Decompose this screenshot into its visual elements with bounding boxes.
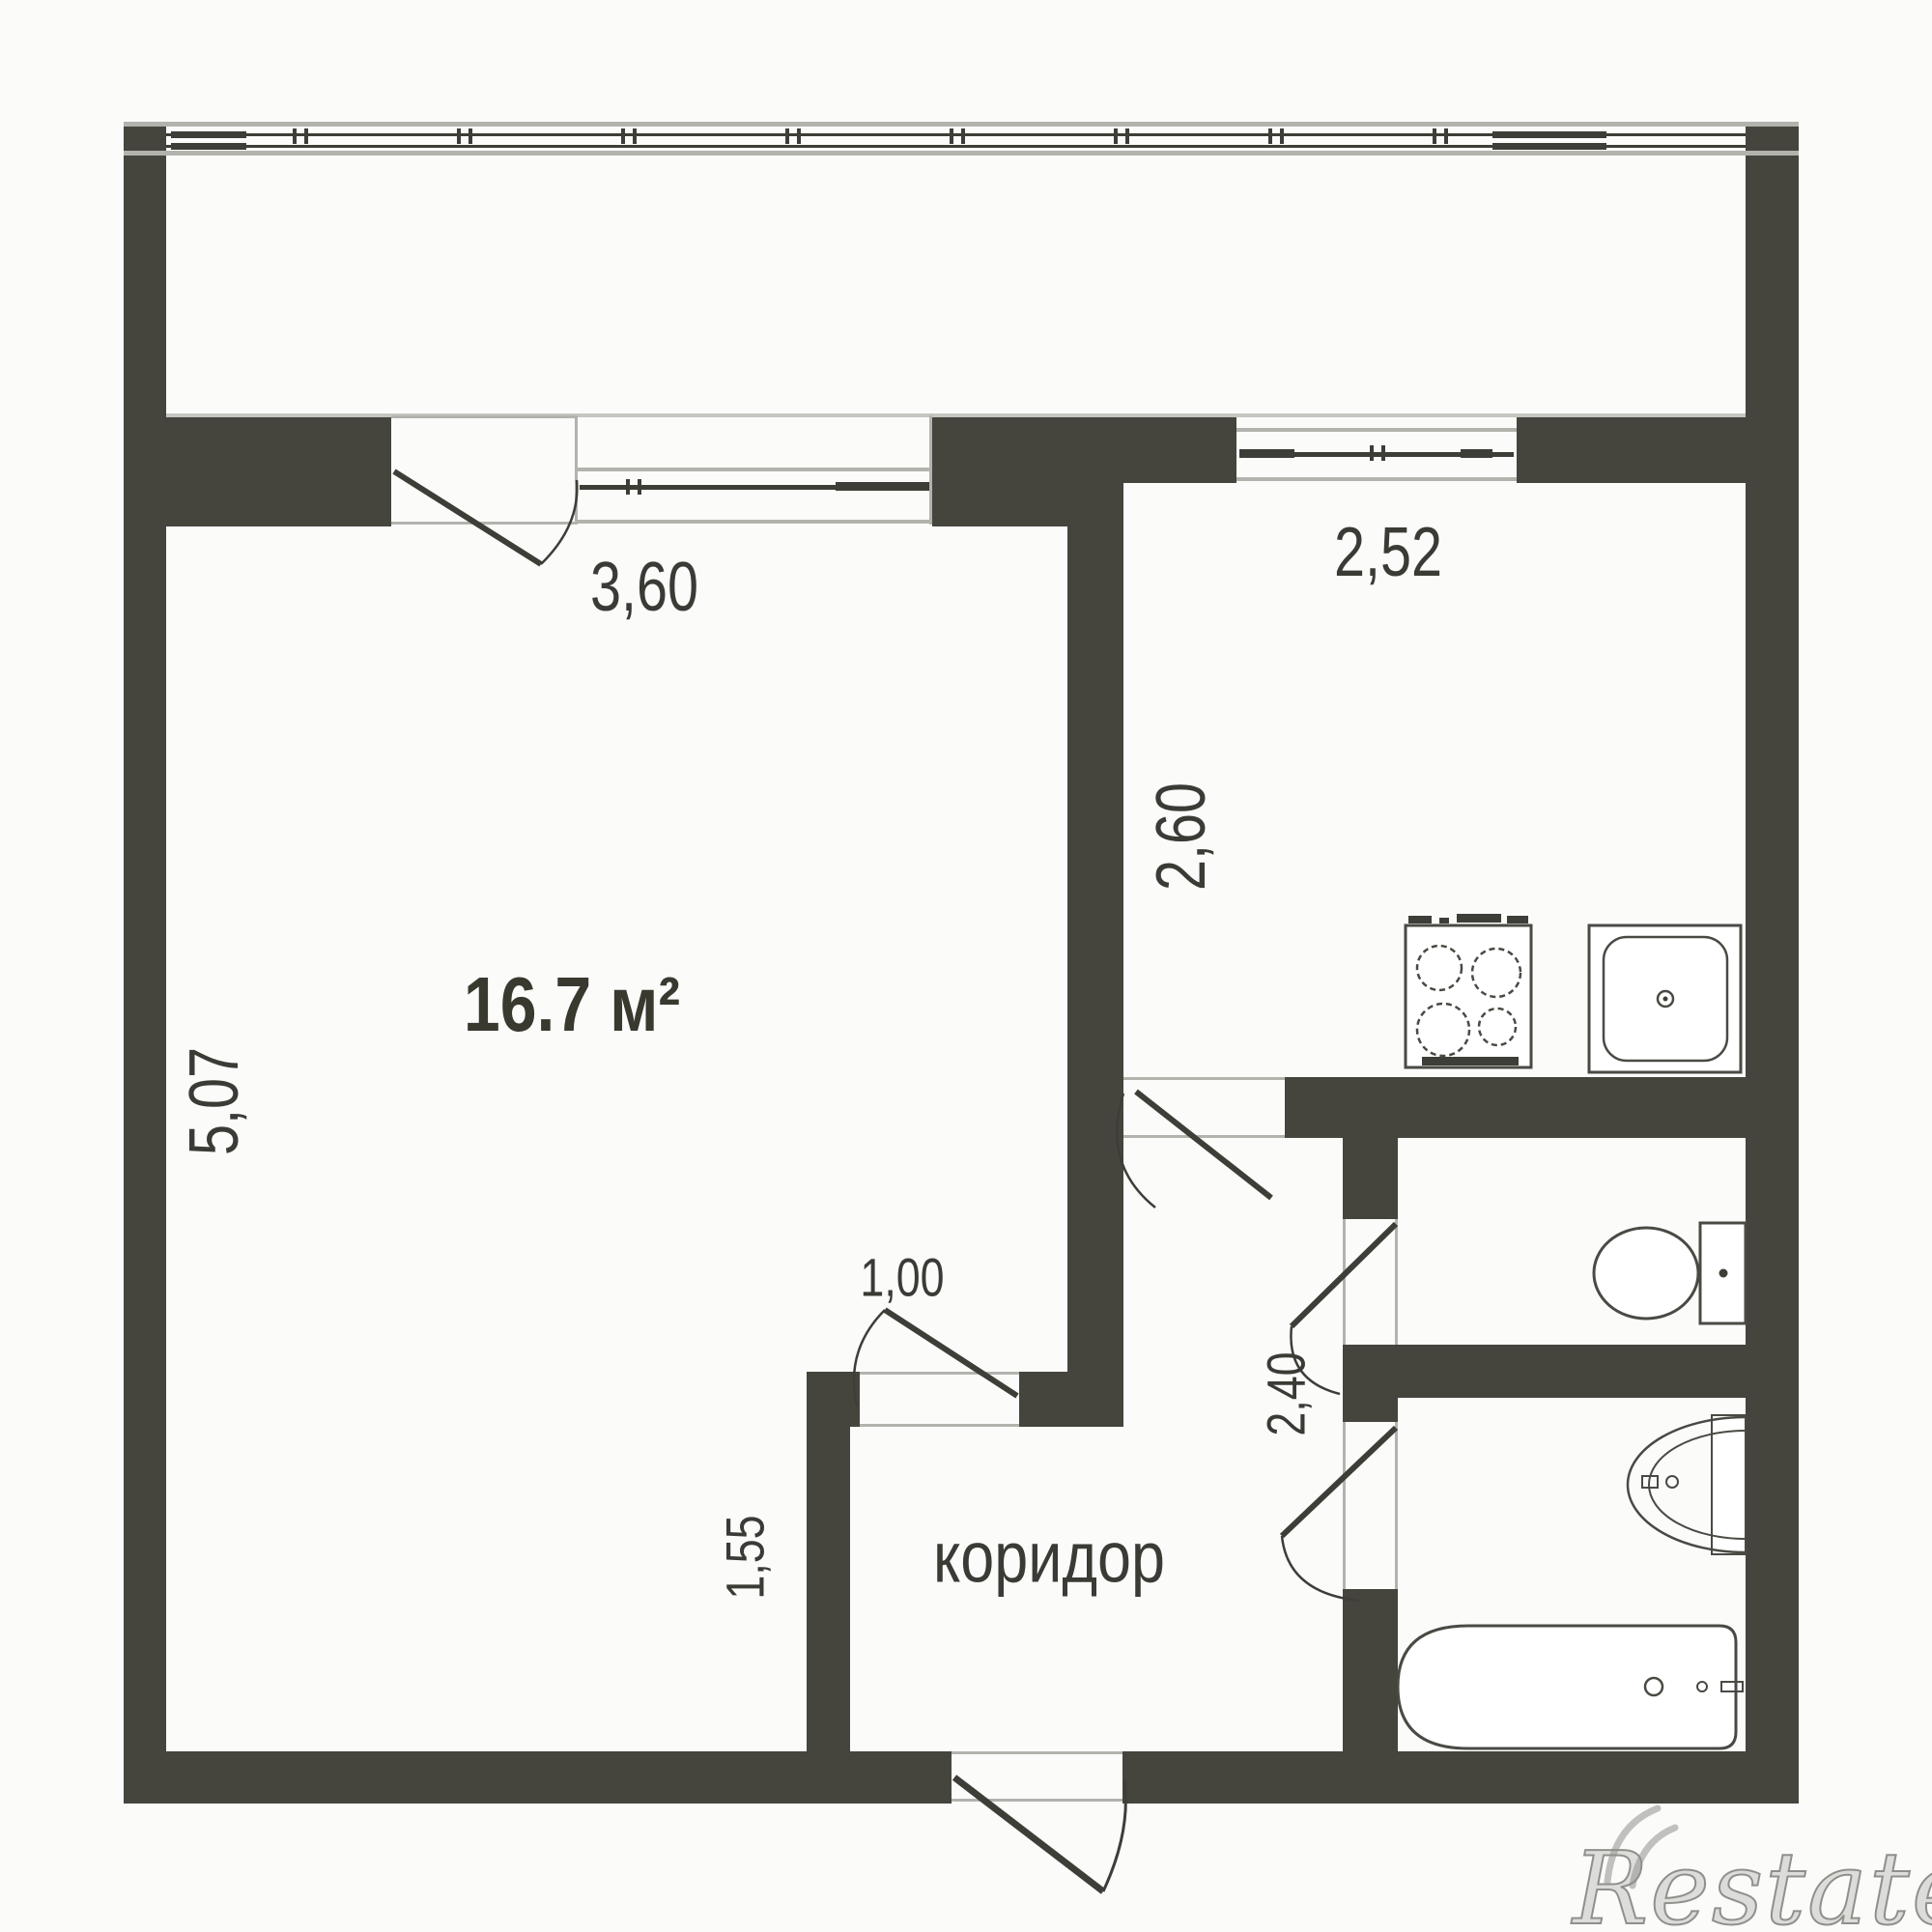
wall-outer-left — [124, 126, 166, 1804]
wall-wc-bath-divider — [1343, 1345, 1746, 1398]
wall-room-kitchen-divider — [1067, 483, 1123, 1427]
wall-outer-bottom-left — [124, 1751, 952, 1804]
wall-corridor-left — [807, 1372, 850, 1751]
bathroom-height-dimension: 2,40 — [1255, 1351, 1318, 1435]
kitchen-sink-icon — [1589, 925, 1741, 1072]
kitchen-door — [1117, 1092, 1271, 1207]
wall-bath-left-top — [1343, 1398, 1398, 1422]
doors — [394, 471, 1396, 1891]
wall-balcony-divider-a — [166, 415, 391, 526]
bathtub-icon — [1398, 1626, 1743, 1748]
room-door-dimension: 1,00 — [860, 1246, 944, 1309]
wall-door-jamb-right — [1019, 1372, 1067, 1427]
kitchen-width-dimension: 2,52 — [1334, 513, 1442, 592]
room-height-dimension: 5,07 — [175, 1047, 254, 1155]
wall-balcony-divider-b — [932, 415, 1067, 526]
washbasin-icon — [1628, 1415, 1746, 1554]
watermark: Restate — [1573, 1830, 1932, 1932]
room-area-label: 16.7 м² — [464, 960, 680, 1049]
floor-plan-svg — [0, 0, 1932, 1932]
stove-icon — [1406, 914, 1531, 1067]
wall-balcony-divider-c — [1067, 415, 1236, 483]
kitchen-window — [1236, 428, 1517, 481]
corridor-height-dimension: 1,55 — [714, 1515, 777, 1599]
wall-wc-left — [1343, 1077, 1398, 1219]
opening-hairlines — [391, 415, 1398, 1802]
room-window — [575, 415, 932, 525]
wall-bath-left-bottom — [1343, 1589, 1398, 1751]
fixtures — [1398, 914, 1746, 1748]
balcony-door — [394, 471, 577, 564]
entrance-door — [954, 1777, 1125, 1891]
kitchen-height-dimension: 2,60 — [1142, 782, 1221, 891]
wall-outer-bottom-right — [1122, 1751, 1799, 1804]
floor-plan: 16.7 м² 3,60 2,52 2,60 5,07 1,00 1,55 2,… — [0, 0, 1932, 1932]
wall-outer-right — [1746, 123, 1799, 1804]
balcony-window-band — [124, 122, 1799, 156]
corridor-label: коридор — [933, 1517, 1165, 1599]
wall-balcony-divider-d — [1517, 415, 1746, 483]
toilet-icon — [1594, 1223, 1746, 1323]
room-width-dimension: 3,60 — [590, 548, 698, 627]
room-corridor-door — [854, 1310, 1017, 1406]
bathroom-door — [1282, 1428, 1396, 1601]
